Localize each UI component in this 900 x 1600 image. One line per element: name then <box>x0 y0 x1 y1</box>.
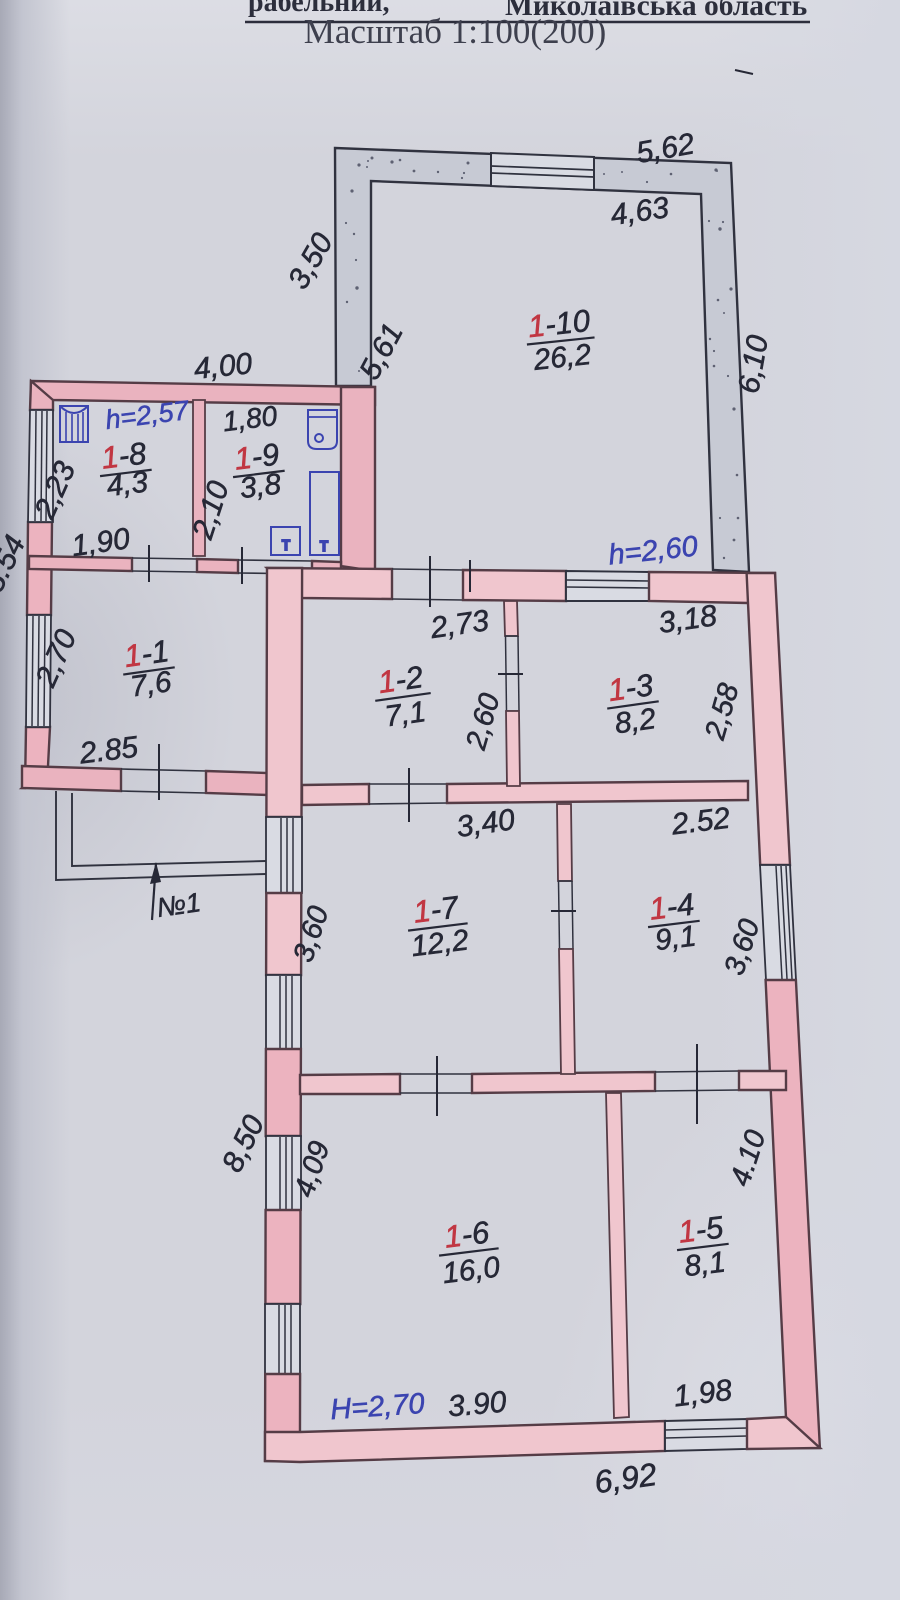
svg-text:1-7: 1-7 <box>411 889 461 929</box>
svg-text:№1: №1 <box>155 887 203 923</box>
svg-text:1,98: 1,98 <box>672 1374 734 1414</box>
svg-text:7,6: 7,6 <box>128 665 174 703</box>
svg-text:12,2: 12,2 <box>409 923 470 963</box>
svg-text:т: т <box>320 535 328 555</box>
svg-text:3,50: 3,50 <box>282 227 340 294</box>
svg-text:2.85: 2.85 <box>77 731 140 771</box>
svg-text:2.52: 2.52 <box>669 802 732 842</box>
svg-text:4.10: 4.10 <box>725 1126 773 1190</box>
svg-text:8,2: 8,2 <box>613 702 658 740</box>
svg-text:2,58: 2,58 <box>699 680 746 744</box>
svg-text:3,60: 3,60 <box>719 915 767 979</box>
svg-text:h=2,60: h=2,60 <box>607 530 699 571</box>
svg-text:16,0: 16,0 <box>441 1250 503 1290</box>
svg-text:4,63: 4,63 <box>608 191 671 232</box>
svg-text:3,40: 3,40 <box>454 803 517 844</box>
svg-text:1-6: 1-6 <box>442 1214 491 1254</box>
svg-text:9,1: 9,1 <box>653 919 698 957</box>
svg-text:1-5: 1-5 <box>676 1209 725 1249</box>
svg-text:8,50: 8,50 <box>216 1110 271 1177</box>
svg-text:7,1: 7,1 <box>383 695 428 733</box>
svg-text:3,8: 3,8 <box>238 467 283 505</box>
svg-text:2,73: 2,73 <box>427 604 491 645</box>
svg-text:3,18: 3,18 <box>656 599 719 640</box>
svg-text:6,92: 6,92 <box>592 1456 659 1500</box>
svg-text:H=2,70: H=2,70 <box>329 1388 425 1427</box>
svg-text:26,2: 26,2 <box>531 338 593 377</box>
svg-text:Масштаб 1:100(200): Масштаб 1:100(200) <box>304 12 607 51</box>
svg-text:т: т <box>282 534 290 554</box>
svg-text:4,3: 4,3 <box>105 465 150 503</box>
svg-text:8,1: 8,1 <box>683 1245 728 1283</box>
svg-text:1,80: 1,80 <box>221 400 279 437</box>
svg-text:4,00: 4,00 <box>192 347 254 386</box>
svg-text:2,60: 2,60 <box>460 690 507 754</box>
svg-text:3.90: 3.90 <box>447 1386 508 1424</box>
